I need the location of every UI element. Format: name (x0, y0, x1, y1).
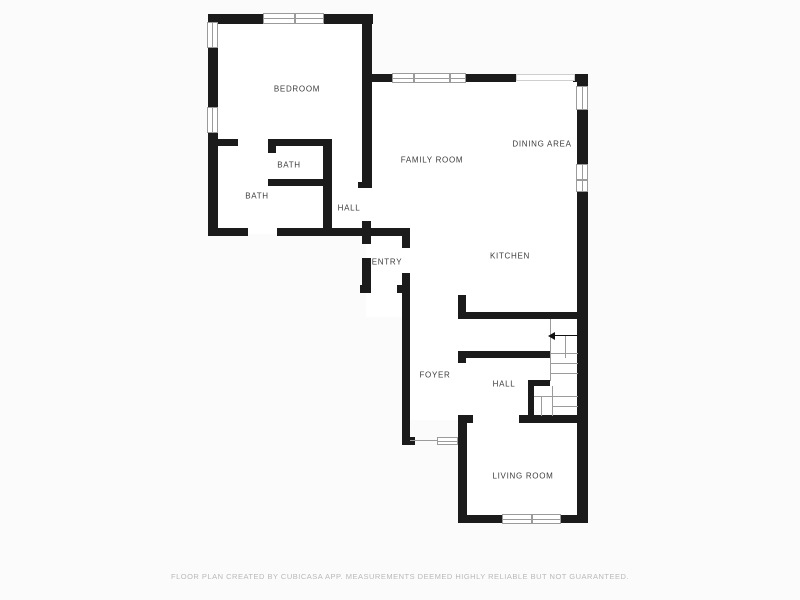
window-glass-line (438, 441, 457, 442)
wall-segment (458, 415, 473, 423)
room-label-bath-large: BATH (245, 192, 269, 201)
window (207, 22, 218, 48)
window-glass-line (212, 108, 213, 132)
stair-tread-line (550, 319, 551, 381)
disclaimer-text: FLOOR PLAN CREATED BY CUBICASA APP. MEAS… (0, 572, 800, 581)
window-glass-line (582, 165, 583, 191)
wall-segment (397, 285, 410, 293)
wall-segment (466, 74, 516, 82)
room-label-foyer: FOYER (419, 371, 450, 380)
stair-tread-line (550, 363, 578, 364)
wall-segment (362, 14, 372, 188)
stair-tread-line (552, 406, 578, 407)
room-label-entry: ENTRY (372, 258, 402, 267)
wall-segment (323, 139, 332, 236)
room-label-living-room: LIVING ROOM (492, 472, 553, 481)
window-divider (294, 14, 296, 23)
room-floor (213, 19, 371, 234)
window-divider (531, 515, 533, 523)
window-glass-line (212, 23, 213, 47)
wall-segment (268, 139, 332, 146)
window (263, 13, 324, 24)
stair-tread-line (541, 396, 542, 416)
window-divider (413, 74, 415, 82)
stair-tread-line (550, 373, 578, 374)
wall-segment (402, 236, 410, 248)
window-glass-line (582, 87, 583, 109)
room-label-family-room: FAMILY ROOM (401, 156, 464, 165)
wall-segment (528, 380, 550, 386)
window (207, 107, 218, 133)
stair-tread-line (410, 440, 438, 441)
room-floor (463, 420, 581, 520)
stair-direction-arrow-head (548, 332, 555, 340)
wall-segment (577, 190, 588, 522)
room-label-dining-area: DINING AREA (512, 140, 571, 149)
floor-plan-canvas: BEDROOM BATH BATH HALL FAMILY ROOM DININ… (0, 0, 800, 600)
room-label-hall-lower: HALL (493, 380, 516, 389)
room-floor (366, 79, 581, 317)
window (502, 514, 561, 524)
wall-segment (458, 312, 588, 319)
wall-segment (458, 351, 550, 358)
wall-segment (577, 108, 588, 166)
stair-tread-line (550, 353, 578, 354)
wall-segment (362, 221, 371, 244)
patio-opening (516, 74, 575, 81)
window-divider (449, 74, 451, 82)
wall-segment (277, 228, 410, 236)
room-label-kitchen: KITCHEN (490, 252, 530, 261)
window (437, 437, 458, 445)
stair-tread-line (534, 396, 578, 397)
window-divider (577, 179, 587, 181)
room-label-hall-upper: HALL (338, 204, 361, 213)
stair-tread-line (552, 386, 553, 416)
wall-segment (528, 386, 534, 420)
stair-direction-arrow (554, 335, 578, 336)
wall-segment (402, 273, 410, 443)
room-label-bath-small: BATH (277, 161, 301, 170)
wall-segment (362, 258, 371, 292)
window-glass-line (393, 78, 465, 79)
room-label-bedroom: BEDROOM (274, 85, 320, 94)
window (576, 164, 588, 192)
window (576, 86, 588, 110)
stair-tread-line (565, 336, 566, 358)
wall-segment (458, 415, 467, 523)
wall-segment (573, 74, 588, 82)
window (392, 73, 466, 83)
